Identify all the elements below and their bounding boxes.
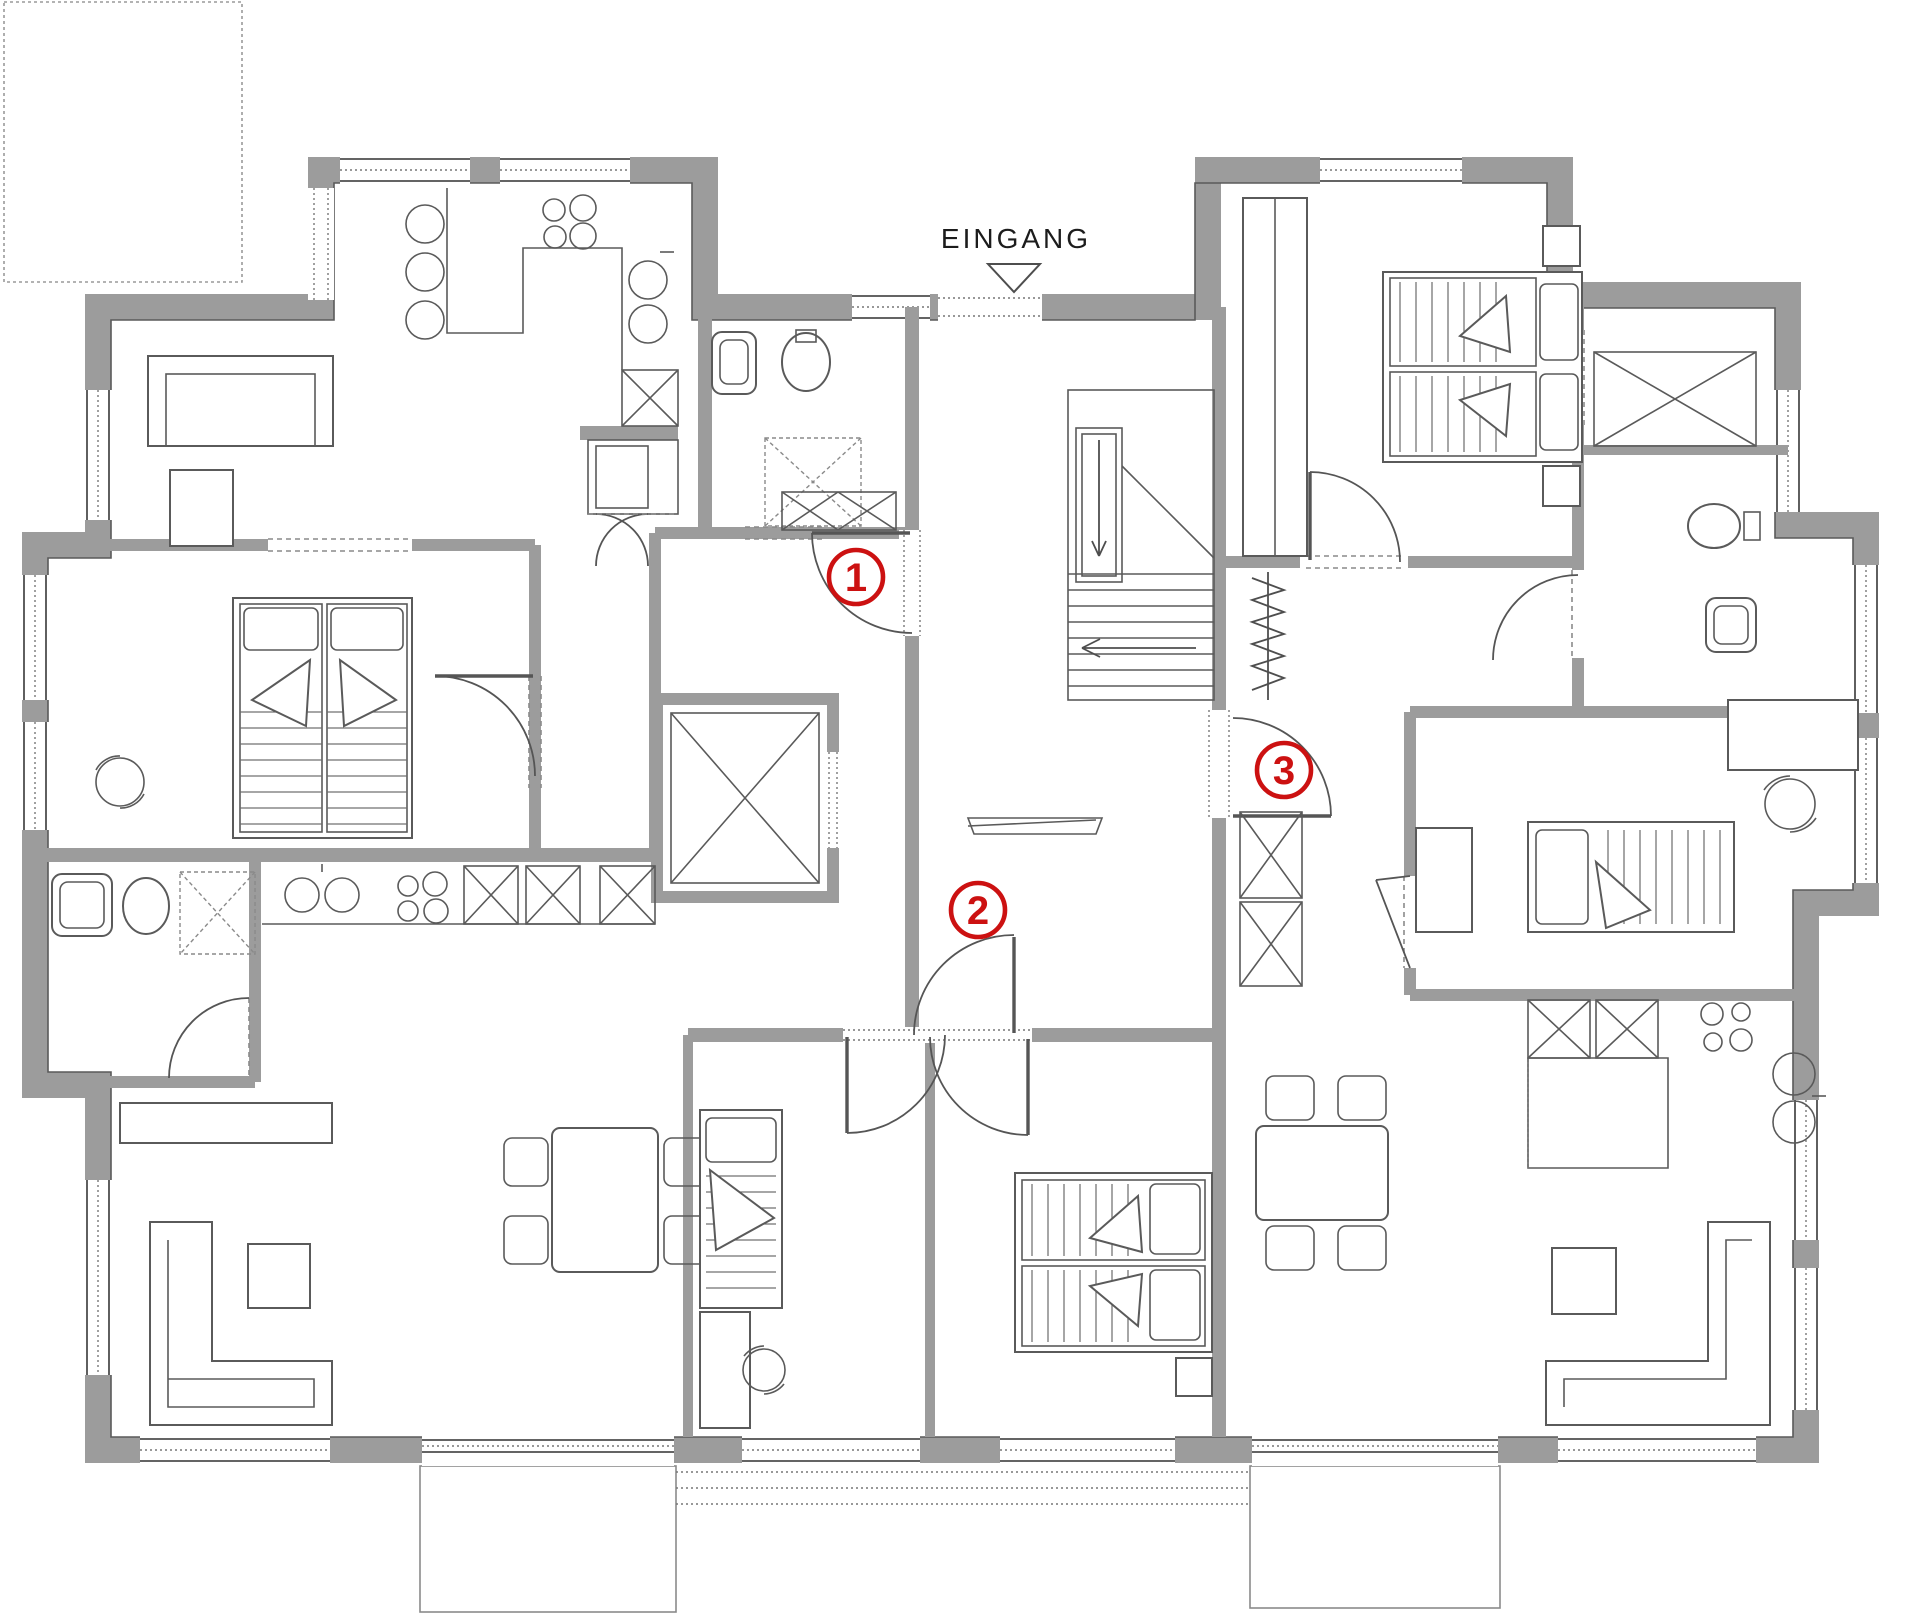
- kitchen3-cupboard-2: [1596, 1000, 1658, 1058]
- door-opening-apt1[interactable]: [899, 530, 925, 636]
- apt1-bathroom: [712, 330, 861, 526]
- window-left-bedroom-1: [21, 575, 49, 700]
- door-apt3-bedroom[interactable]: [1310, 472, 1400, 562]
- window-right-living-1: [1792, 1100, 1820, 1240]
- apt1-bedroom: [96, 598, 412, 838]
- shower-2: [180, 872, 255, 954]
- bedroom-plant: [96, 756, 144, 808]
- window-right-living-2: [1792, 1268, 1820, 1410]
- entrance-arrow-icon: [988, 264, 1040, 292]
- sink2-bowl-1: [285, 878, 319, 912]
- apartment-marker-3[interactable]: 3: [1257, 743, 1311, 797]
- door-apt3-office[interactable]: [1376, 876, 1410, 968]
- door-opening-apt3-bedroom: [1306, 556, 1402, 568]
- elevator-door[interactable]: [827, 752, 839, 848]
- kitchen3-cupboard-1: [1528, 1000, 1590, 1058]
- terrace-left: [420, 1466, 676, 1612]
- cooktop-3: [1701, 1003, 1752, 1051]
- elevator: [657, 699, 839, 897]
- apt2-living: [120, 1103, 708, 1425]
- chair: [504, 1216, 548, 1264]
- coffee-table-2: [248, 1244, 310, 1308]
- apt2-bedroom-double: [1015, 1173, 1212, 1396]
- window-left-living-bottom: [84, 1180, 112, 1375]
- apt1-kitchen: [406, 188, 678, 514]
- apt3-kitchen: [1528, 1000, 1826, 1168]
- opening-apt1-living: [268, 539, 412, 551]
- kitchen2-fridge: [600, 866, 655, 924]
- cooktop: [543, 195, 596, 249]
- sideboard-2: [120, 1103, 332, 1143]
- kitchen2-cupboard-1: [464, 866, 518, 924]
- terrace-right: [1250, 1466, 1500, 1608]
- apartment-1: [96, 188, 896, 838]
- duvet-left: [240, 700, 322, 832]
- apartment-2: [52, 864, 1212, 1428]
- kitchen2-cupboard-2: [526, 866, 580, 924]
- kitchen-counter-edge: [447, 188, 622, 370]
- svg-text:2: 2: [967, 889, 989, 933]
- window-bottom-left: [140, 1436, 330, 1464]
- sofa: [148, 356, 333, 446]
- apartment-marker-1[interactable]: 1: [829, 550, 883, 604]
- desk-chair-3: [1764, 776, 1816, 832]
- dining-set-2: [504, 1128, 708, 1272]
- wall-pantry-stub: [580, 426, 678, 440]
- window-right-office-1: [1852, 565, 1880, 713]
- apt3-living: [1256, 1076, 1770, 1425]
- stool-2: [406, 253, 444, 291]
- sink2-bowl-2: [325, 878, 359, 912]
- apt3-office: [1416, 700, 1858, 932]
- entrance-label: EINGANG: [941, 223, 1091, 254]
- window-left-living-top: [84, 390, 112, 520]
- dining-set-3: [1256, 1076, 1388, 1270]
- chair: [1338, 1226, 1386, 1270]
- glass-front-right: [1252, 1434, 1498, 1466]
- pantry-appliance: [588, 440, 678, 514]
- svg-text:3: 3: [1273, 749, 1295, 793]
- stairs-cut-line: [1122, 466, 1214, 558]
- toilet-2: [123, 878, 169, 934]
- nightstand-top: [1543, 226, 1580, 266]
- apt3-dressing: [1594, 352, 1756, 446]
- entrance-door-opening[interactable]: [938, 292, 1042, 322]
- window-top-left-1: [340, 156, 470, 184]
- desk-3: [1728, 700, 1858, 770]
- apt1-living: [148, 356, 333, 546]
- toilet-3-tank: [1744, 512, 1760, 540]
- glass-front-left: [422, 1434, 674, 1466]
- sliding-door-entry-hall: [968, 818, 1102, 834]
- door-apt2-bath[interactable]: [169, 998, 249, 1078]
- hall-wardrobe-1: [1240, 812, 1302, 898]
- stairs-down-arrow: [1092, 440, 1106, 556]
- chair: [1266, 1076, 1314, 1120]
- door-apt3-bath[interactable]: [1493, 575, 1578, 660]
- toilet-3: [1688, 504, 1740, 548]
- door-opening-apt3[interactable]: [1203, 710, 1235, 818]
- nightstand-bottom: [1543, 466, 1580, 506]
- floorplan-canvas: EINGANG 1 2 3: [0, 0, 1920, 1621]
- chair: [1266, 1226, 1314, 1270]
- bath2-sink: [52, 874, 112, 936]
- stairs-treads: [1068, 574, 1214, 686]
- coffee-table-3: [1552, 1248, 1616, 1314]
- kitchen-terrace-door[interactable]: [308, 188, 334, 300]
- dining-table-2: [552, 1128, 658, 1272]
- window-bottom-middle-1: [742, 1436, 920, 1464]
- door-apt2-bedroom-right[interactable]: [930, 1037, 1028, 1135]
- terrace-hatch-lines: [676, 1472, 1250, 1504]
- kitchen-sink: [629, 252, 674, 343]
- tall-cupboard: [622, 370, 678, 426]
- nightstand-2: [1176, 1358, 1212, 1396]
- apt1-hall-wardrobe: [782, 492, 896, 530]
- cooktop-2: [398, 872, 448, 923]
- door-apt1-pantry[interactable]: [596, 514, 648, 566]
- svg-text:1: 1: [845, 556, 867, 600]
- apt3-bathroom: [1688, 504, 1760, 652]
- duvet-right: [327, 700, 407, 832]
- stool-1: [406, 205, 444, 243]
- window-top-right: [1320, 156, 1462, 184]
- dining-table-3: [1256, 1126, 1388, 1220]
- stool-3: [406, 301, 444, 339]
- side-table: [170, 470, 233, 546]
- elevator-x: [671, 713, 819, 883]
- stairwell: [1068, 390, 1214, 700]
- door-opening-apt2[interactable]: [843, 1027, 1032, 1043]
- apt3-bedroom: [1243, 198, 1582, 556]
- window-bottom-middle-2: [1000, 1436, 1175, 1464]
- door-apt2[interactable]: [914, 935, 1014, 1035]
- apt2-bedroom-single: [700, 1110, 785, 1428]
- cabinet-3: [1416, 828, 1472, 932]
- door-apt1-bedroom[interactable]: [435, 676, 535, 776]
- apt2-kitchen: [262, 864, 655, 924]
- floorplan-drawing: EINGANG 1 2 3: [0, 0, 1920, 1621]
- chair: [504, 1138, 548, 1186]
- apartment-3: [1240, 198, 1858, 1425]
- kitchen3-counter: [1528, 1058, 1668, 1168]
- window-bottom-right: [1558, 1436, 1756, 1464]
- window-top-left-2: [500, 156, 630, 184]
- window-left-bedroom-2: [21, 722, 49, 830]
- hall-wardrobe-2: [1240, 902, 1302, 986]
- balcony-dashed-top-left: [4, 2, 242, 282]
- apt2-bathroom: [52, 872, 255, 954]
- apartment-marker-2[interactable]: 2: [951, 883, 1005, 937]
- chair: [1338, 1076, 1386, 1120]
